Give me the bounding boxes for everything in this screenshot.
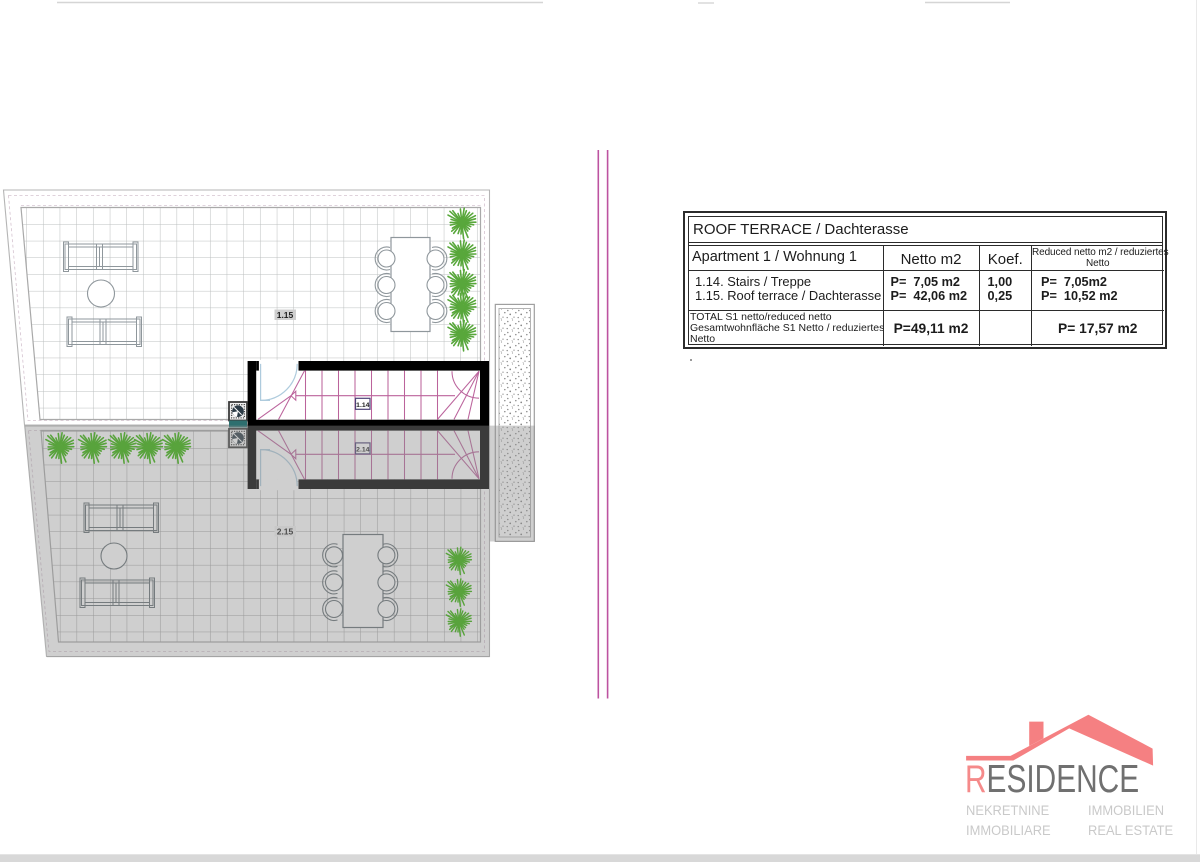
svg-text:1.15: 1.15 — [277, 310, 294, 320]
svg-text:1.14: 1.14 — [356, 402, 369, 409]
